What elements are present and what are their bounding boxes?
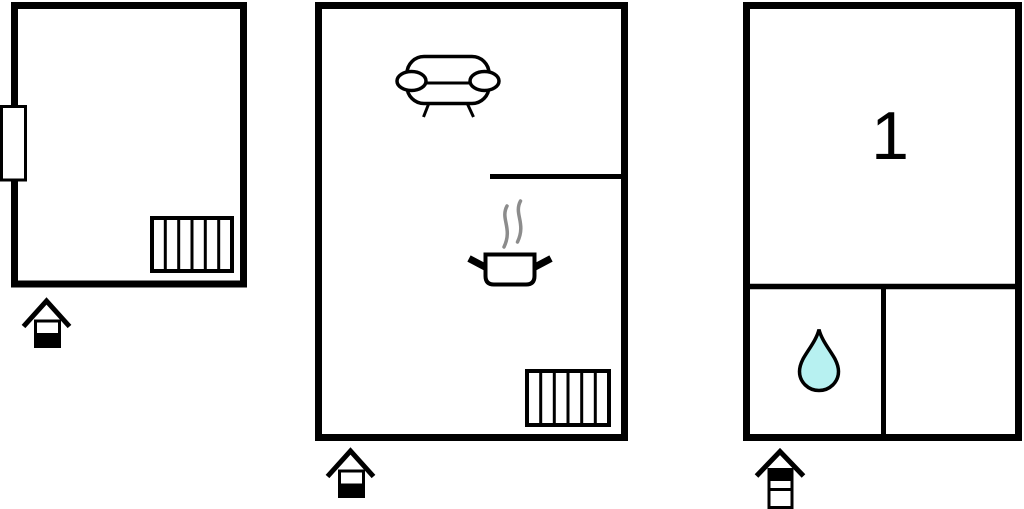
floorplan-left bbox=[2, 6, 244, 348]
house-level-icon bbox=[328, 451, 374, 498]
pot-body bbox=[486, 255, 535, 285]
house-level-icon bbox=[757, 452, 804, 508]
floorplan-drawing: 1 bbox=[0, 0, 1024, 509]
room-number-label: 1 bbox=[871, 98, 909, 174]
house-level-icon bbox=[24, 301, 70, 347]
floorplan-middle bbox=[319, 6, 625, 498]
radiator-icon bbox=[152, 218, 232, 271]
radiator-icon bbox=[527, 371, 609, 425]
highlighted-floor bbox=[768, 468, 794, 481]
floorplan-right: 1 bbox=[747, 6, 1019, 508]
highlighted-floor bbox=[34, 333, 61, 347]
window-icon bbox=[2, 107, 26, 181]
floorplan-canvas: 1 bbox=[0, 0, 1024, 509]
highlighted-floor bbox=[338, 484, 365, 498]
